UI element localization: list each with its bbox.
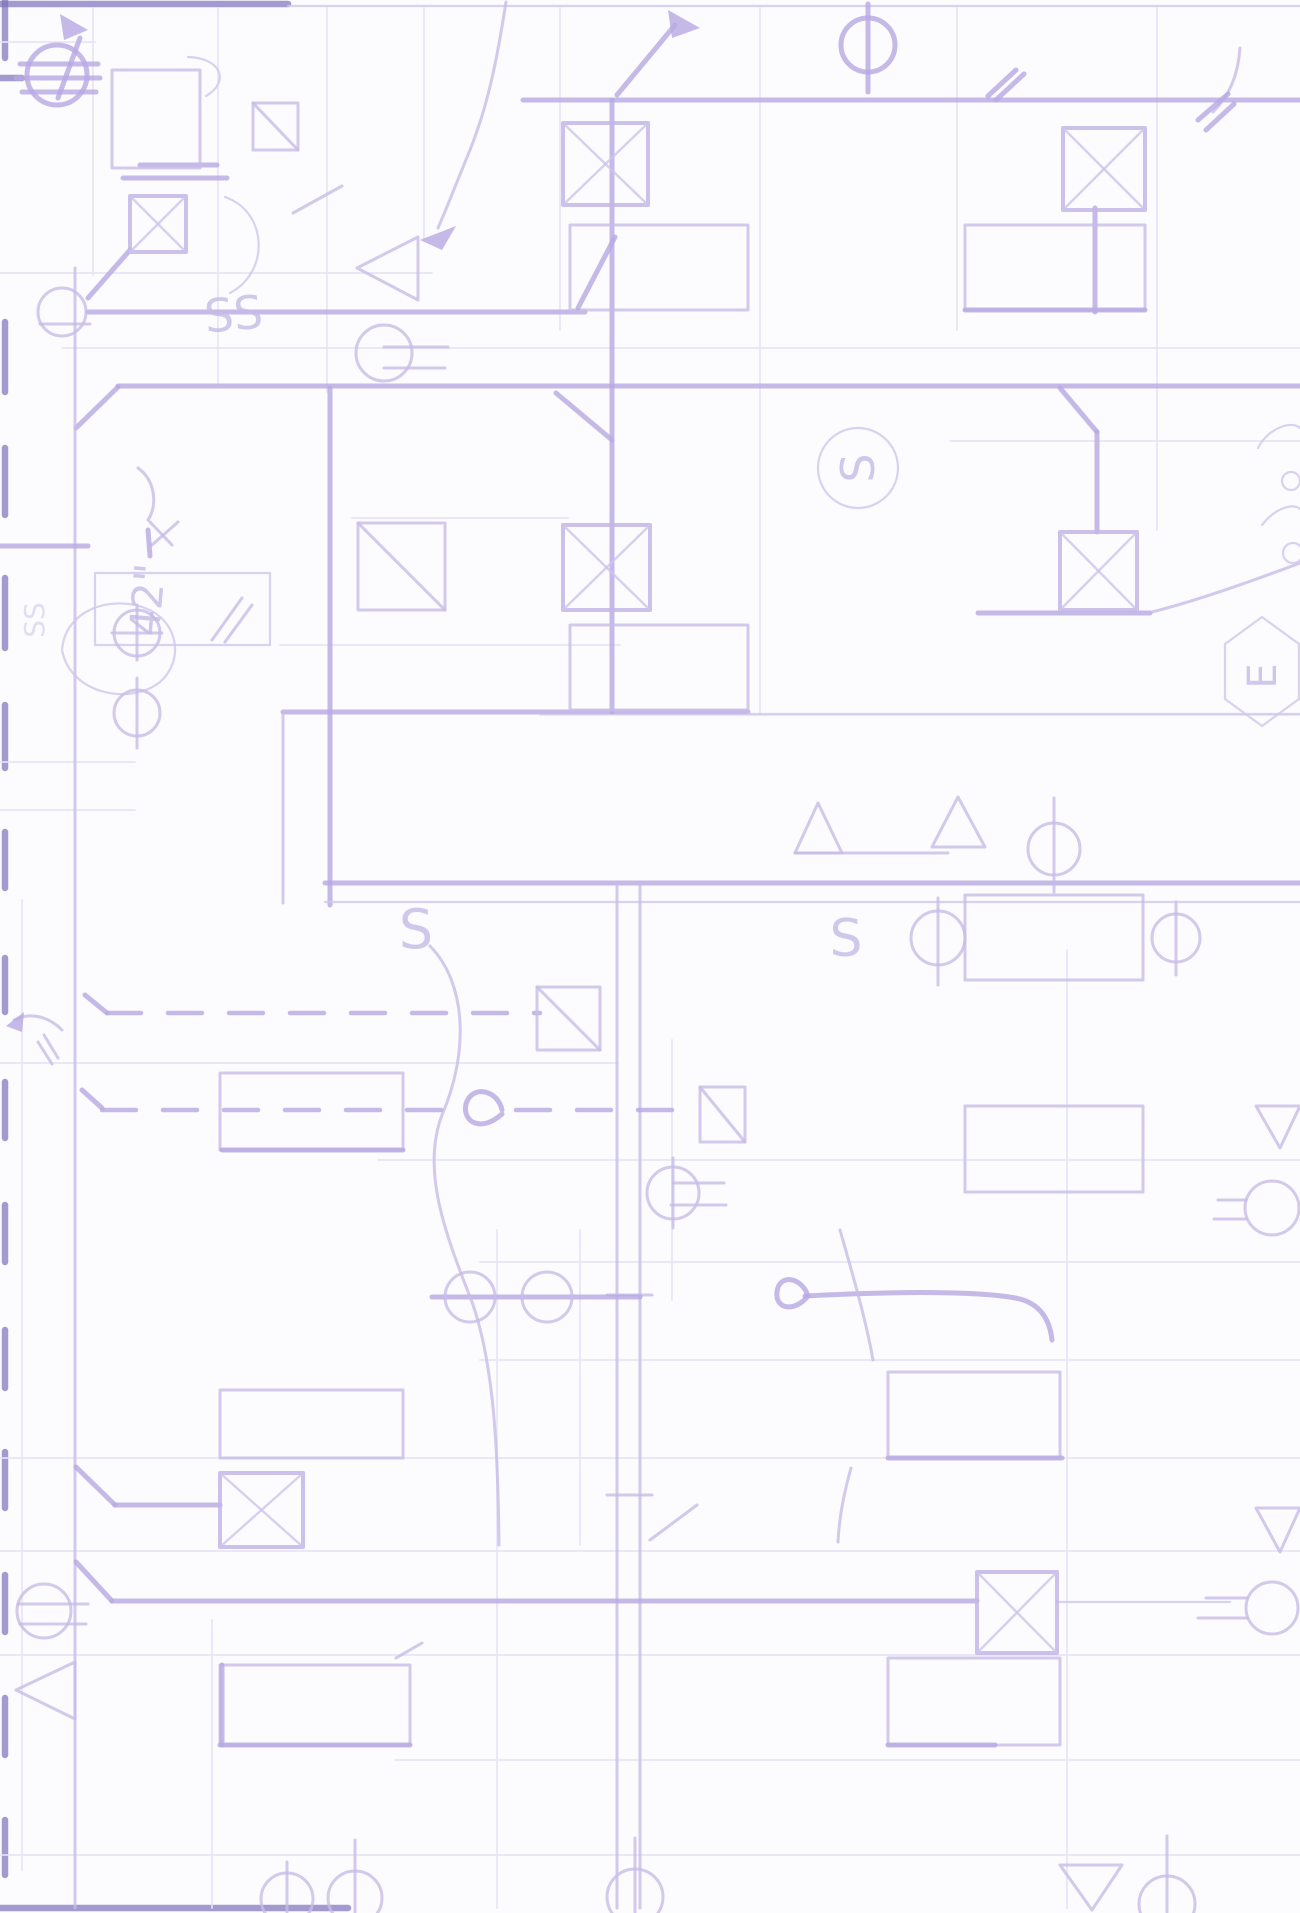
- arrowhead: [60, 14, 88, 40]
- scribble-circle: [1282, 472, 1300, 490]
- light-outlet-symbol: [607, 1838, 663, 1913]
- switch-leg-curve: [430, 946, 499, 1545]
- crossed-box-symbol: [563, 525, 650, 610]
- light-outlet-symbol: [911, 898, 965, 985]
- crossed-box-symbol: [220, 1473, 303, 1547]
- fixture-rect: [220, 1665, 410, 1745]
- door-arc: [188, 57, 220, 96]
- conduit-line: [76, 1467, 115, 1505]
- light-outlet-symbol: [328, 1840, 382, 1913]
- hatch-mark: [212, 598, 242, 640]
- receptacle-symbol: [17, 1584, 88, 1638]
- conduit-curve: [1152, 563, 1300, 612]
- furniture-curve: [838, 1468, 851, 1542]
- plain-box-symbol: [112, 70, 200, 168]
- receptacle-symbol: [38, 288, 90, 336]
- conduit-curve: [805, 1293, 1052, 1340]
- sketch-line: [650, 1505, 697, 1540]
- conduit-line: [76, 1562, 112, 1601]
- receptacle-symbol: [647, 1158, 726, 1228]
- wall-line: [76, 387, 118, 428]
- crossed-box-symbol: [1060, 532, 1137, 610]
- triangle-symbol: [795, 803, 842, 853]
- half-crossed-box-symbol: [253, 103, 298, 150]
- conduit-loop: [465, 1092, 502, 1124]
- hatch-mark: [152, 522, 178, 545]
- fixture-rect: [965, 1106, 1143, 1192]
- receptacle-symbol: [356, 325, 448, 381]
- triangle-symbol: [1256, 1106, 1300, 1148]
- fixture-rect: [888, 1372, 1060, 1458]
- fixture-rect: [220, 1390, 403, 1458]
- arrowhead: [420, 226, 456, 250]
- half-crossed-box-symbol: [358, 523, 445, 610]
- light-outlet-symbol: [1028, 798, 1080, 892]
- label-ss-rotated: SS: [18, 602, 51, 638]
- floorplan-sketch: SSSSSE42"SS: [0, 0, 1300, 1913]
- label-ss: SS: [202, 285, 265, 344]
- crossed-box-symbol: [563, 123, 648, 205]
- scribble-curve: [1258, 425, 1300, 448]
- light-outlet-symbol: [841, 4, 895, 92]
- label-s-in-circle: S: [831, 453, 885, 482]
- conduit-line: [556, 393, 612, 440]
- half-crossed-box-symbol: [537, 987, 600, 1050]
- conduit-line: [88, 250, 130, 298]
- switch-leg-curve: [438, 2, 506, 228]
- scribble-circle: [1283, 543, 1300, 563]
- scribble-mark: [148, 530, 150, 556]
- fixture-rect: [965, 895, 1143, 980]
- conduit-line: [578, 237, 615, 308]
- dashed-lead: [82, 1090, 102, 1108]
- triangle-symbol: [16, 1662, 75, 1719]
- triangle-symbol: [357, 237, 418, 300]
- crossed-box-symbol: [130, 196, 186, 252]
- conduit-line: [617, 25, 675, 95]
- triangle-symbol: [932, 797, 985, 847]
- light-outlet-symbol: [114, 678, 160, 748]
- fixture-rect: [888, 1658, 1060, 1745]
- label-42-inch: 42": [120, 561, 175, 638]
- floorplan-sketch-page: SSSSSE42"SS: [0, 0, 1300, 1913]
- conduit-loop: [777, 1280, 808, 1307]
- light-outlet-symbol: [1152, 902, 1200, 975]
- scribble-curve: [1262, 506, 1300, 525]
- triangle-symbol: [1256, 1508, 1300, 1552]
- fixture-rect: [965, 225, 1145, 310]
- label-s-left: S: [399, 898, 433, 961]
- scribble-curve: [138, 468, 154, 520]
- conduit-line: [1060, 388, 1097, 432]
- door-arc: [225, 197, 259, 293]
- arrowhead: [6, 1012, 24, 1032]
- conduit-line: [293, 186, 342, 213]
- hatch-mark: [150, 522, 172, 545]
- dashed-lead: [85, 995, 107, 1013]
- arrowhead: [668, 10, 700, 38]
- crossed-box-symbol: [1063, 128, 1145, 210]
- hatch-mark: [225, 605, 252, 642]
- receptacle-symbol: [1198, 1582, 1298, 1634]
- light-outlet-symbol: [1139, 1836, 1195, 1913]
- receptacle-symbol: [1214, 1181, 1299, 1235]
- label-s-right: S: [829, 909, 862, 969]
- triangle-symbol: [1060, 1865, 1122, 1910]
- half-crossed-box-symbol: [700, 1087, 745, 1142]
- fixture-rect: [570, 625, 748, 710]
- label-e-in-hexagon: E: [1240, 663, 1286, 688]
- crossed-box-symbol: [977, 1572, 1057, 1653]
